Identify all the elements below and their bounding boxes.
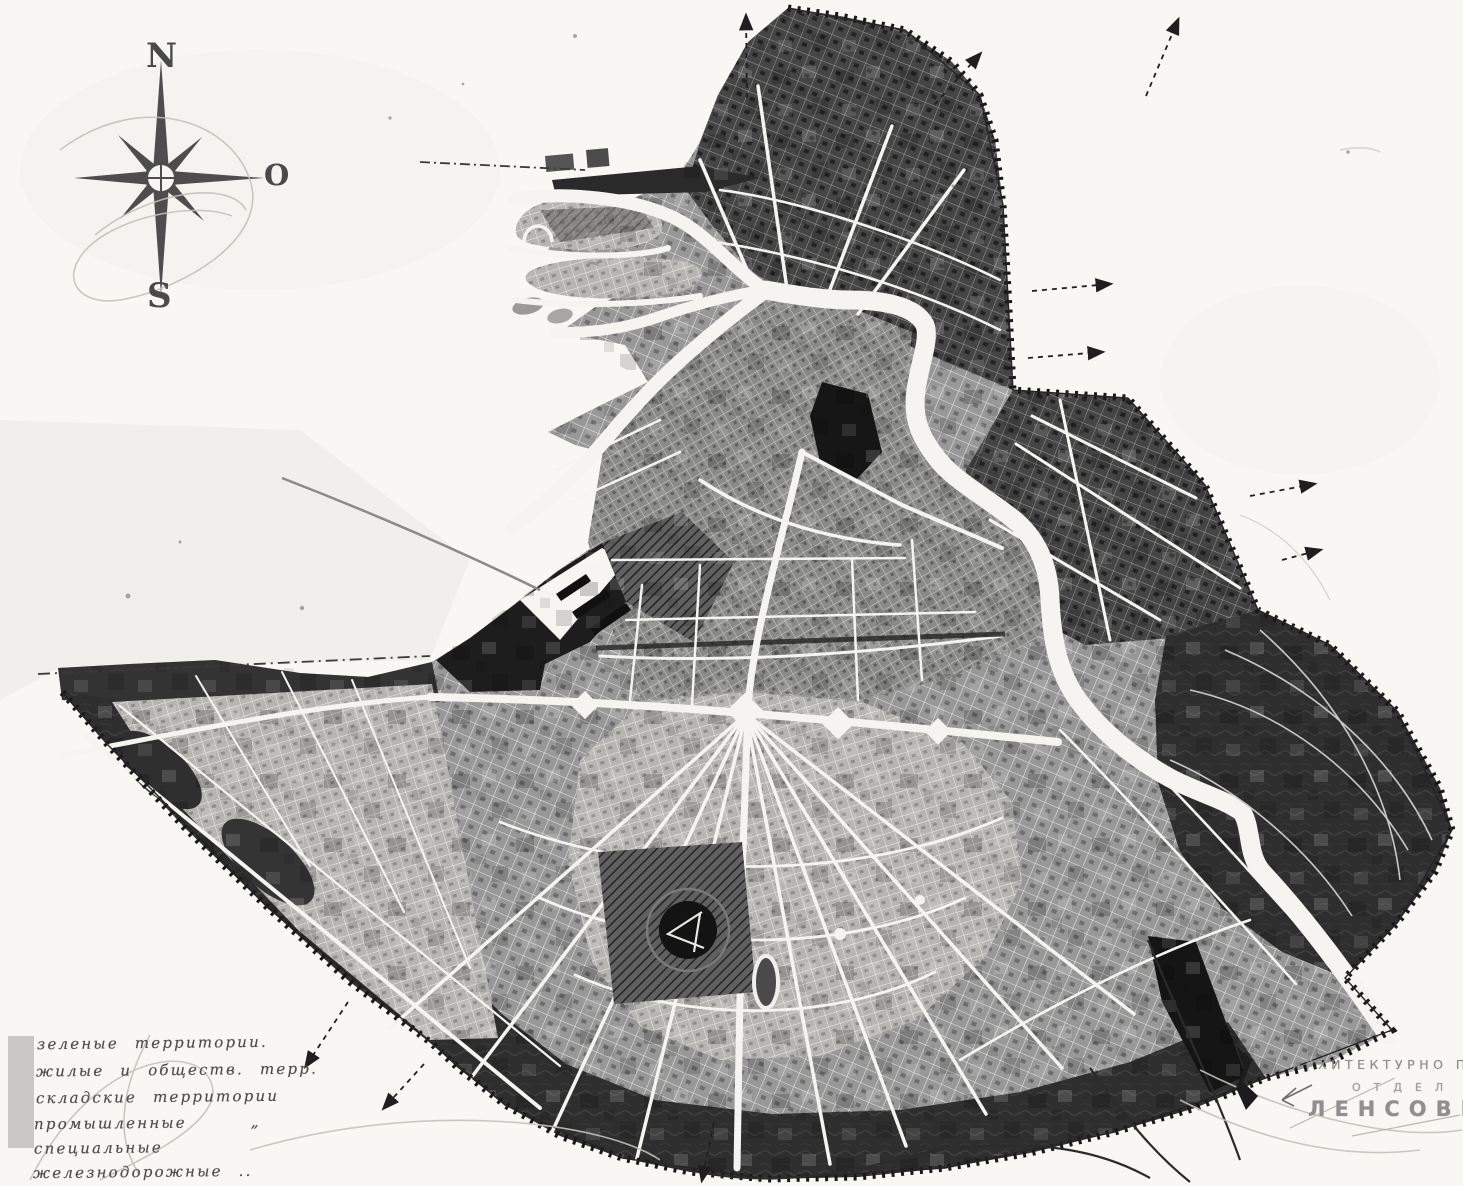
arrow-southwest-2 — [384, 1064, 424, 1108]
lakhta-block-1 — [545, 154, 574, 172]
right-wash — [1160, 285, 1440, 475]
attribution-line-3: ЛЕНСОВЕТА — [1308, 1097, 1463, 1121]
lakhta-block-2 — [586, 148, 609, 168]
legend-item: зеленые территории. — [37, 1033, 268, 1053]
attribution-line-2: ОТДЕЛ — [1352, 1081, 1456, 1094]
legend-item: складские территории — [36, 1087, 279, 1108]
islet-2 — [546, 306, 575, 326]
legend-item: железнодорожные .. — [33, 1162, 253, 1182]
oval-stadium — [754, 956, 778, 1008]
arrow-north — [746, 16, 747, 98]
legend-item: жилые и обществ. терр. — [36, 1060, 318, 1081]
arrow-east-3 — [1250, 484, 1314, 496]
arrow-northeast-2 — [1146, 20, 1178, 96]
legend-item: промышленные „ — [34, 1113, 261, 1133]
legend-item: специальные — [34, 1138, 163, 1157]
top-left-wash — [20, 50, 500, 290]
arrow-southwest-1 — [306, 1002, 348, 1066]
arrow-east-4 — [1282, 550, 1320, 560]
scanned-map-photo: N O S зеленые территории. жилые и общест… — [0, 0, 1463, 1186]
arrow-east-1 — [1032, 284, 1110, 291]
attribution-line-1: АРХИТЕКТУРНО ПЛАНИРОВО — [1293, 1057, 1463, 1072]
compass-label-east: O — [264, 158, 289, 192]
stadium-disc — [659, 901, 717, 959]
arrow-east-2 — [1028, 352, 1102, 358]
city-plan-artwork — [0, 0, 1463, 1186]
compass-label-south: S — [147, 276, 172, 316]
compass-label-north: N — [146, 36, 177, 76]
legend-swatch — [8, 1036, 34, 1148]
